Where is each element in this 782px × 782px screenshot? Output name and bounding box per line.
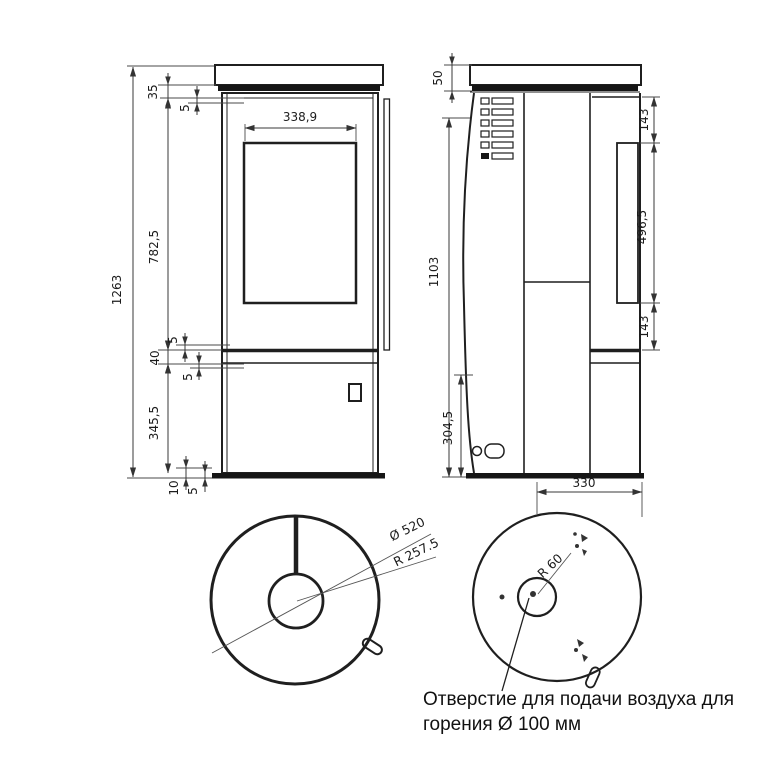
stove-technical-drawing: Ø 520 R 257.5 R 60 — [0, 0, 782, 782]
dim-side-glass-height: 496,5 — [635, 210, 649, 244]
annotation-line-2: горения Ø 100 мм — [423, 714, 581, 735]
dim-side-base-depth: 330 — [573, 476, 596, 490]
side-vent-grille — [481, 98, 513, 159]
dim-front-top-gap-small: 5 — [178, 104, 192, 112]
dim-side-glass-bottom-offset: 143 — [637, 316, 651, 339]
side-view — [463, 65, 644, 479]
side-air-knob — [473, 447, 482, 456]
dim-front-door-height: 782,5 — [147, 230, 161, 264]
dim-side-body-height: 1103 — [427, 257, 441, 288]
annotation-line-1: Отверстие для подачи воздуха для — [423, 689, 734, 710]
front-top-plate — [215, 65, 383, 85]
dim-front-base-gap: 5 — [186, 487, 200, 495]
front-side-panel-edge — [384, 99, 390, 350]
dim-front-top-gap: 35 — [146, 84, 160, 99]
dim-front-mid-gap-upper: 5 — [166, 336, 180, 344]
top-handle-tab — [361, 637, 384, 656]
foot-marks-lower — [574, 639, 588, 662]
side-base — [466, 473, 644, 479]
annotation-leader-line — [502, 598, 529, 691]
radius-leader-line — [297, 557, 436, 601]
dim-side-top-plate: 50 — [431, 70, 445, 85]
front-door-glass — [244, 143, 356, 303]
flue-collar-circle — [269, 574, 323, 628]
front-dimensions: 35 5 338,9 782,5 1263 5 40 5 345,5 10 5 — [110, 66, 356, 496]
air-inlet-center-dot — [530, 591, 536, 597]
dim-front-lower-panel: 345,5 — [147, 406, 161, 440]
air-inlet-annotation: Отверстие для подачи воздуха для горения… — [423, 689, 734, 735]
front-latch-handle — [349, 384, 361, 401]
foot-marks-upper — [573, 532, 588, 556]
front-body — [222, 93, 378, 473]
dim-front-total-height: 1263 — [110, 275, 124, 306]
drawing-canvas: Ø 520 R 257.5 R 60 — [0, 0, 782, 782]
side-top-plate — [470, 65, 641, 85]
front-plate-band — [218, 85, 380, 91]
side-air-lever — [485, 444, 504, 458]
side-front-curve — [463, 93, 474, 473]
stove-foot — [584, 666, 601, 689]
front-view — [212, 65, 390, 479]
side-dimensions: 50 1103 143 496,5 143 304,5 330 — [427, 53, 660, 517]
dim-air-inlet-radius: R 60 — [534, 550, 565, 580]
dim-front-base-height: 10 — [167, 480, 181, 495]
bottom-view: R 60 — [473, 513, 641, 691]
fixing-dot — [500, 595, 505, 600]
dim-side-lower-section: 304,5 — [441, 411, 455, 445]
top-view: Ø 520 R 257.5 — [211, 514, 441, 684]
air-inlet-circle — [518, 578, 556, 616]
dim-side-glass-top-offset: 143 — [637, 109, 651, 132]
front-base — [212, 473, 385, 479]
dim-front-mid-gap-lower: 5 — [181, 373, 195, 381]
side-plate-band — [472, 85, 638, 91]
dim-front-glass-width: 338,9 — [283, 110, 317, 124]
dim-front-mid-band: 40 — [148, 350, 162, 365]
